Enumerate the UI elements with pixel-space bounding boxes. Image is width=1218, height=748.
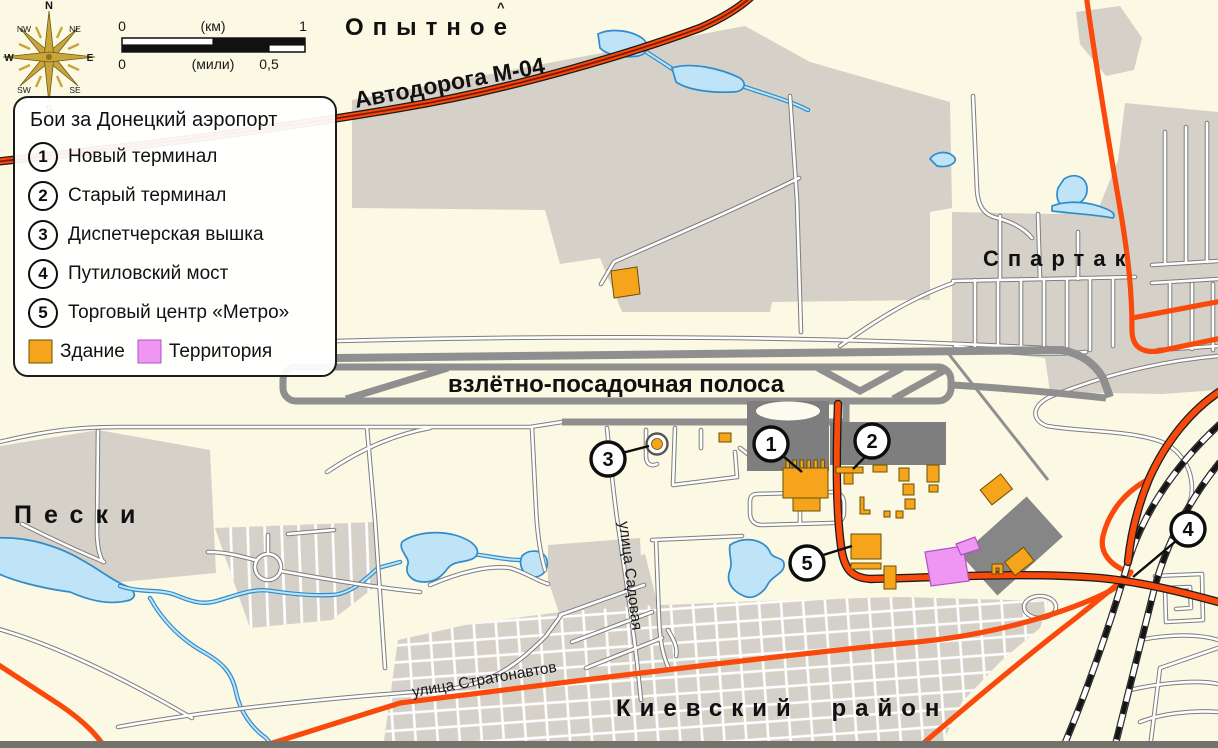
svg-text:4: 4 [1182, 519, 1194, 541]
legend-item-putilovsky-bridge: 4 Путиловский мост [28, 259, 322, 289]
legend-badge-3: 3 [28, 220, 58, 250]
svg-text:1: 1 [765, 434, 776, 456]
apron-oval [756, 402, 820, 421]
compass-nw: NW [17, 24, 31, 34]
label-runway: взлётно-посадочная полоса [448, 371, 785, 398]
label-peski: Пески [14, 501, 147, 529]
label-opytne: Опытное [345, 14, 516, 41]
compass-e: E [87, 53, 94, 64]
compass-w: W [4, 53, 14, 64]
scale-km-start: 0 [118, 18, 126, 34]
legend-territory-label: Территория [169, 341, 272, 363]
label-spartak: Спартак [983, 246, 1135, 271]
building-field [611, 267, 640, 298]
legend-badge-4: 4 [28, 259, 58, 289]
legend-badge-5: 5 [28, 298, 58, 328]
legend-box: Бои за Донецкий аэропорт 1 Новый термина… [13, 96, 337, 377]
svg-text:2: 2 [866, 431, 877, 453]
legend-item-new-terminal: 1 Новый терминал [28, 142, 322, 172]
label-kyivskyi-district: Киевский район [616, 695, 948, 722]
label-opytne-mark: ^ [497, 0, 505, 15]
legend-badge-1: 1 [28, 142, 58, 172]
legend-item-metro-mall: 5 Торговый центр «Метро» [28, 298, 322, 328]
compass-ne: NE [69, 24, 81, 34]
scale-mi-half: 0,5 [259, 56, 279, 72]
scale-mi-start: 0 [118, 56, 126, 72]
building-swatch-icon [28, 339, 53, 364]
territory-swatch-icon [137, 339, 162, 364]
scale-km-unit: (км) [200, 18, 225, 34]
scale-km-end: 1 [299, 18, 307, 34]
map-bottom-edge [0, 741, 1218, 748]
legend-item-old-terminal: 2 Старый терминал [28, 181, 322, 211]
legend-badge-2: 2 [28, 181, 58, 211]
scale-mi-unit: (мили) [192, 56, 235, 72]
legend-item-control-tower: 3 Диспетчерская вышка [28, 220, 322, 250]
compass-se: SE [69, 85, 81, 95]
metro-building [851, 534, 881, 559]
svg-text:3: 3 [602, 449, 613, 471]
legend-building-label: Здание [60, 341, 125, 363]
legend-swatches: Здание Территория [28, 339, 322, 364]
map-screenshot: N S W E NW NE SW SE 0 (км) 1 0 (мили) 0,… [0, 0, 1218, 748]
compass-n: N [45, 0, 53, 12]
legend-title: Бои за Донецкий аэропорт [30, 109, 322, 132]
compass-sw: SW [17, 85, 31, 95]
svg-text:5: 5 [801, 553, 812, 575]
new-terminal-building [783, 468, 828, 498]
control-tower-symbol [647, 434, 668, 455]
